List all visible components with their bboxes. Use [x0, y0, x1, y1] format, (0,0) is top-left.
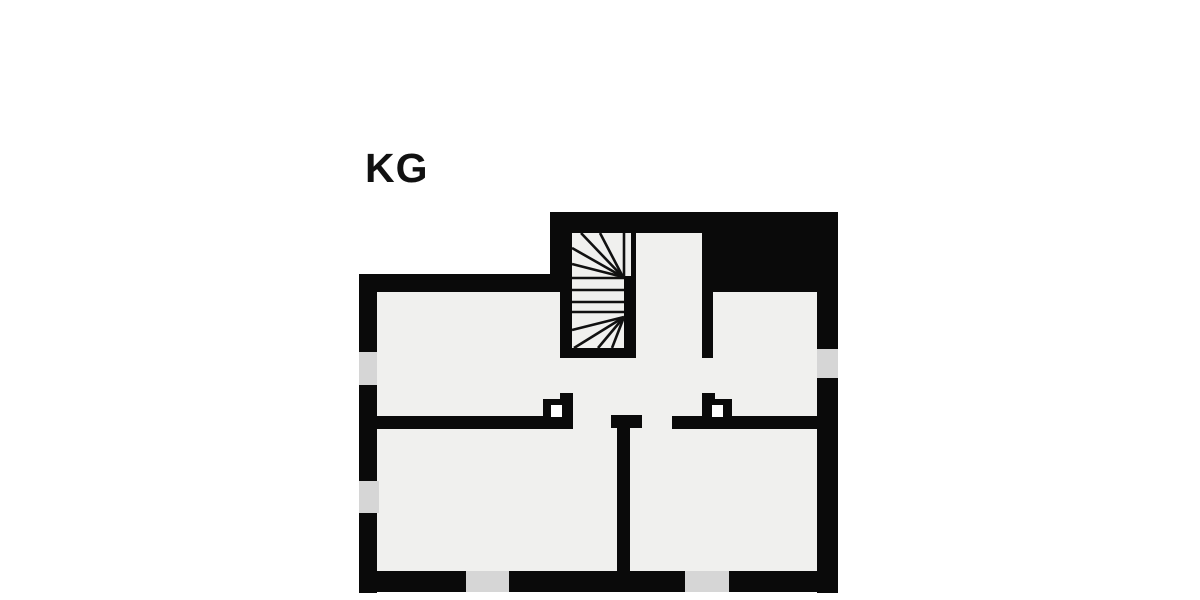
window-left-upper [359, 352, 377, 385]
chimney-left-hole [551, 405, 562, 417]
mid-wall-right-segment [672, 416, 838, 429]
window-right [817, 349, 838, 378]
stair-right-wall [624, 276, 636, 358]
upper-left-top-wall [359, 274, 572, 292]
floor-plan-canvas: KG [0, 0, 1200, 600]
doorway-gap-left [573, 416, 611, 429]
tower-top-wall [550, 212, 838, 233]
stair-bottom-wall [560, 348, 636, 358]
bottom-opening-left [466, 571, 509, 592]
corridor-floor [636, 233, 702, 358]
top-right-wall-block [702, 233, 838, 292]
lower-left-room-floor [377, 428, 617, 571]
right-outer-wall [817, 292, 838, 593]
doorway-gap-right [642, 416, 672, 429]
chimney-right-hole [712, 405, 723, 417]
window-left-lower [359, 481, 379, 513]
upper-left-room-floor [377, 292, 562, 417]
lower-right-room-floor [630, 428, 817, 571]
tower-left-wall [550, 212, 572, 274]
hallway-floor [560, 358, 713, 417]
left-outer-wall [359, 274, 377, 593]
upper-right-room-floor [713, 292, 817, 417]
corridor-right-wall [702, 233, 713, 358]
lower-rooms-divider-wall [617, 428, 630, 571]
bottom-outer-wall [359, 571, 838, 592]
mid-wall-left-segment [377, 416, 573, 429]
floor-plan-drawing [0, 0, 1200, 600]
bottom-opening-right [685, 571, 729, 592]
mid-wall-stub [611, 415, 642, 428]
stair-corridor-divider [631, 233, 636, 279]
